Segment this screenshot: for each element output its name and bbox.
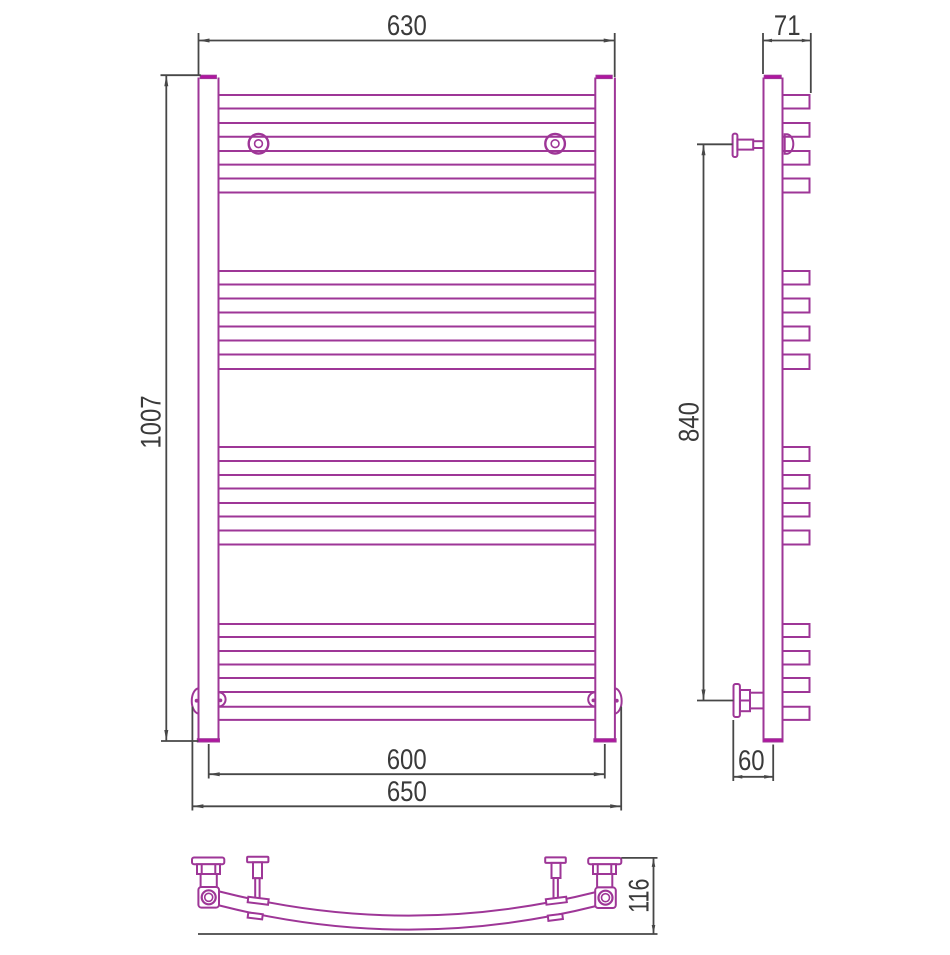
svg-text:116: 116 (623, 879, 655, 913)
svg-text:840: 840 (673, 402, 705, 442)
svg-text:650: 650 (387, 776, 427, 808)
svg-text:630: 630 (387, 10, 427, 42)
svg-text:1007: 1007 (135, 395, 167, 448)
svg-text:60: 60 (738, 745, 765, 777)
svg-text:600: 600 (387, 744, 427, 776)
svg-text:71: 71 (774, 10, 801, 42)
